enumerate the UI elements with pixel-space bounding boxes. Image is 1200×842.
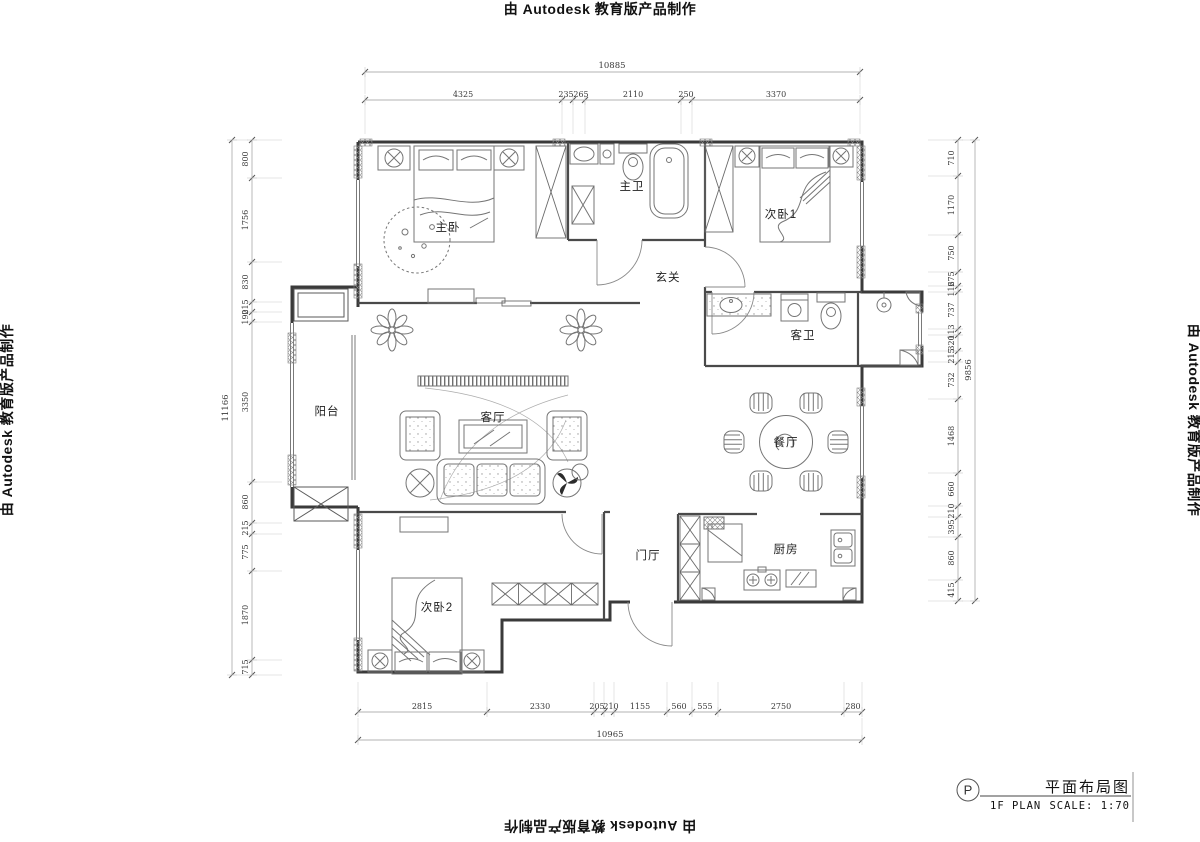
dim-label: 750 [947,245,956,260]
dim-label: 775 [241,544,250,559]
edu-stamp-right: 由 Autodesk 教育版产品制作 [1186,324,1200,517]
dim-label: 415 [947,582,956,597]
dim-label: 265 [573,90,588,99]
dim-label: 210 [603,702,618,711]
dim-label: 116 [947,281,956,296]
dim-label: 1468 [947,426,956,446]
dim-label: 250 [678,90,693,99]
room-label-guest-bath: 客卫 [791,328,816,342]
dim-label: 560 [671,702,686,711]
dim-label: 860 [947,550,956,565]
dim-label: 860 [241,494,250,509]
dim-label: 2110 [623,90,643,99]
edu-stamp-left: 由 Autodesk 教育版产品制作 [0,324,15,517]
scale-label: SCALE: 1:70 [1049,800,1130,812]
dim-label: 280 [845,702,860,711]
room-label-kitchen: 厨房 [774,543,799,556]
dim-left-overall: 11166 [221,394,231,421]
dim-label: 710 [947,150,956,165]
dim-label: 3350 [241,392,250,412]
dim-label: 215 [947,348,956,363]
cad-plot-page: 由 Autodesk 教育版产品制作 由 Autodesk 教育版产品制作 由 … [0,0,1200,842]
dim-right-overall: 9856 [964,359,974,381]
paper-background [0,0,1200,842]
room-label-balcony: 阳台 [315,404,340,418]
dim-label: 2750 [771,702,791,711]
tv-wall-band [418,376,568,386]
room-label-bedroom-2: 次卧1 [765,207,797,221]
dim-label: 205 [589,702,604,711]
room-label-bedroom-3: 次卧2 [421,600,453,614]
dim-label: 1756 [241,210,250,230]
dim-label: 190 [241,309,250,324]
room-label-hallway: 玄关 [656,270,681,284]
dim-label: 800 [241,151,250,166]
floor-plan-canvas: 由 Autodesk 教育版产品制作 由 Autodesk 教育版产品制作 由 … [0,0,1200,842]
dim-top-overall: 10885 [598,61,625,71]
dim-label: 2815 [412,702,432,711]
room-label-foyer: 门厅 [636,548,661,562]
room-label-dining-room: 餐厅 [774,435,799,449]
dim-label: 1870 [241,605,250,625]
edu-stamp-bottom: 由 Autodesk 教育版产品制作 [504,818,697,834]
plan-level-label: 1F PLAN [990,800,1041,812]
dim-label: 830 [241,274,250,289]
dim-label: 1155 [630,702,650,711]
room-label-master-bath: 主卫 [620,180,645,193]
edu-stamp-top: 由 Autodesk 教育版产品制作 [504,1,697,17]
dim-label: 210 [947,503,956,518]
dim-label: 732 [947,372,956,387]
dim-label: 555 [697,702,712,711]
dim-bottom-overall: 10965 [596,730,623,740]
dim-label: 395 [947,519,956,534]
room-label-master-bedroom: 主卧 [436,221,461,234]
dim-label: 1170 [947,195,956,215]
dim-label: 235 [558,90,573,99]
drawing-title: 平面布局图 [1045,779,1130,796]
dim-label: 215 [241,520,250,535]
dim-label: 3370 [766,90,786,99]
room-label-living-room: 客厅 [481,410,506,424]
dim-label: 4325 [453,90,473,99]
plan-marker-letter: P [964,783,973,798]
dim-label: 2330 [530,702,550,711]
dim-label: 320 [947,335,956,350]
dim-label: 737 [947,302,956,317]
dim-label: 715 [241,659,250,674]
dim-label: 660 [947,481,956,496]
